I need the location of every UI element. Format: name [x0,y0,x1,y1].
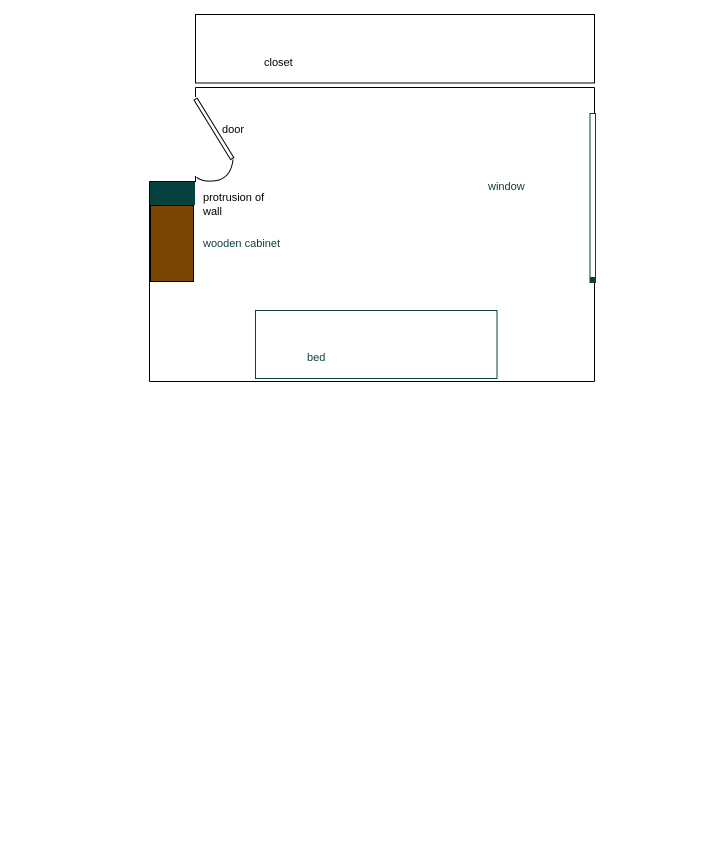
door-label: door [222,123,244,137]
floor-plan-canvas: closet door protrusion of wall wooden ca… [0,0,721,861]
door-swing-arc [197,160,234,182]
bed-outline [256,311,498,379]
closet-outline [196,15,595,84]
window-bottom-cap [590,277,596,283]
wall-protrusion-label-line1: protrusion of [203,191,264,205]
window-outline [590,114,596,283]
wooden-cabinet-label: wooden cabinet [203,237,280,251]
wall-protrusion-label-line2: wall [203,205,264,219]
wooden-cabinet-block [151,206,194,282]
floor-plan-drawing [0,0,721,420]
wall-protrusion-block [150,182,195,205]
closet-label: closet [264,56,293,70]
window-label: window [488,180,525,194]
bed-label: bed [307,351,325,365]
wall-protrusion-label: protrusion of wall [203,191,264,219]
